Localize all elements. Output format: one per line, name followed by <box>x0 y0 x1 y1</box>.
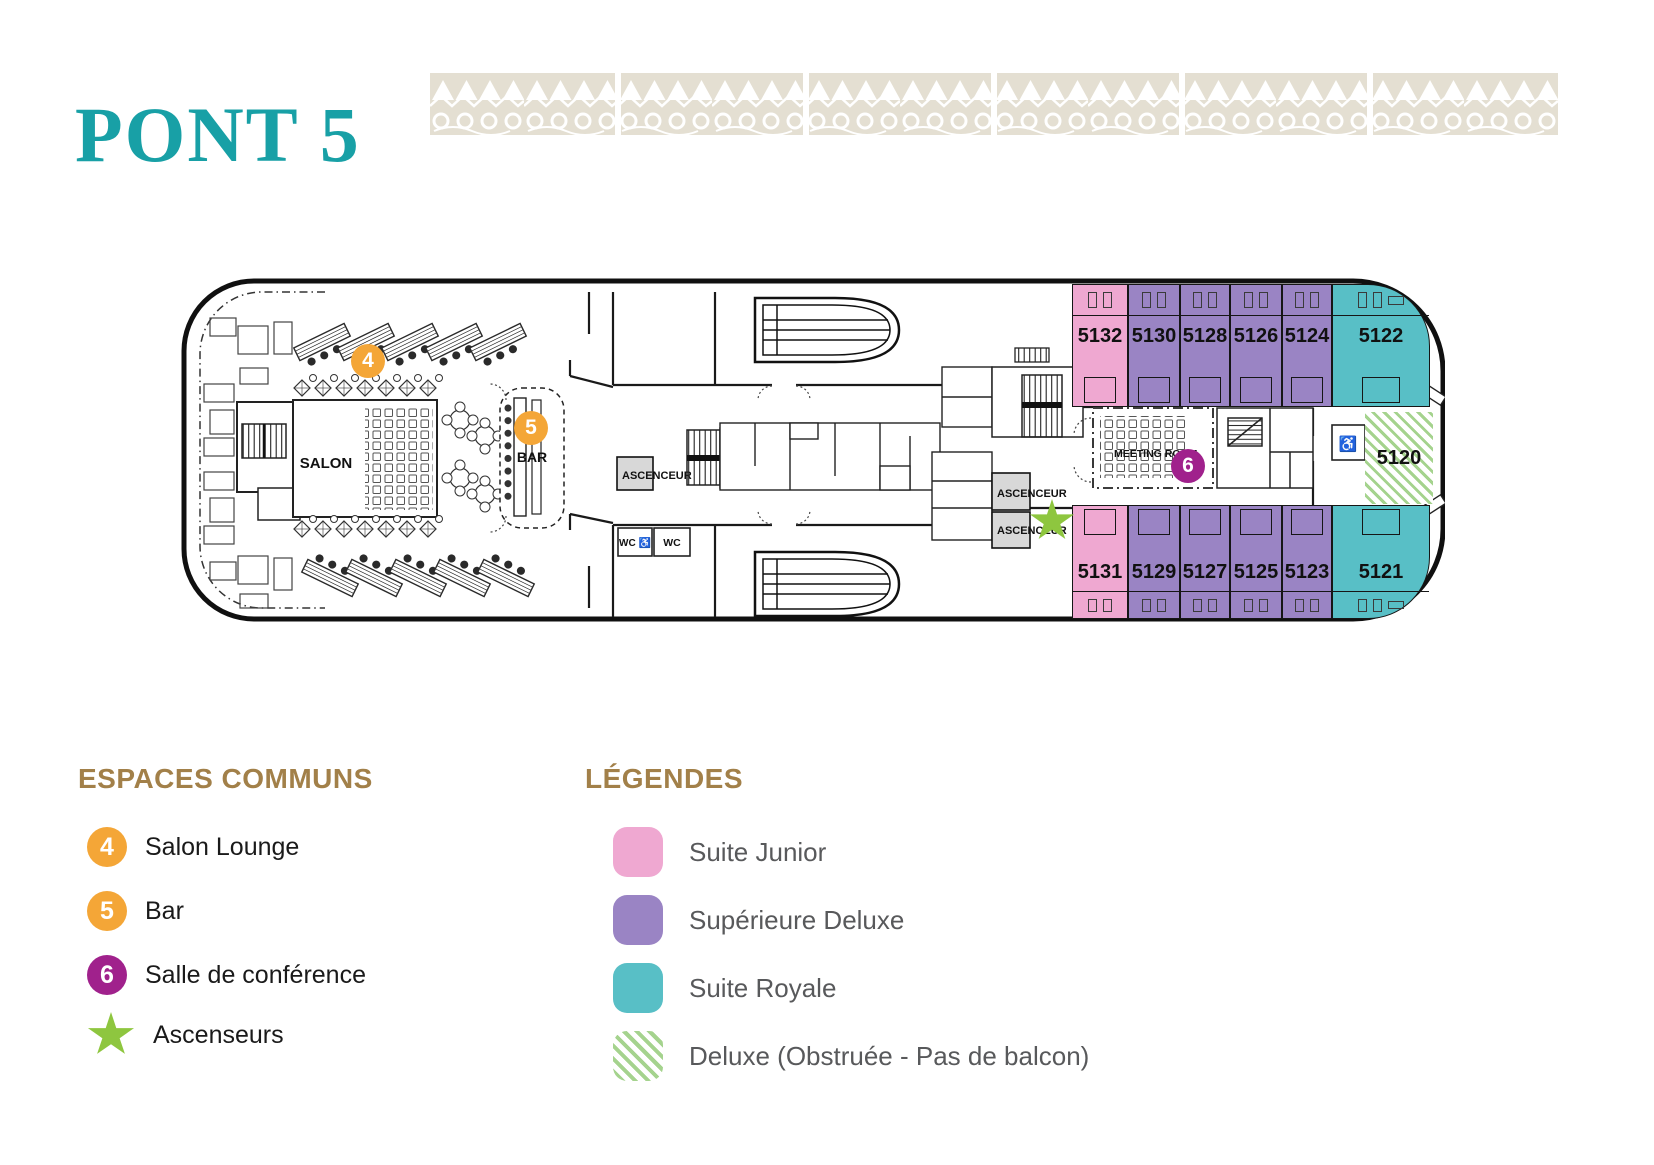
balcony <box>1283 591 1331 618</box>
bed <box>1189 509 1221 535</box>
cabin-number: 5126 <box>1231 325 1281 348</box>
legend-item-label: Salon Lounge <box>145 833 299 862</box>
wc-label: WC <box>663 537 681 549</box>
bed <box>1291 509 1323 535</box>
legend-item-label: Bar <box>145 897 184 926</box>
star-icon <box>87 1012 135 1058</box>
legend-item-label: Supérieure Deluxe <box>689 905 904 936</box>
balcony <box>1333 591 1429 618</box>
legend-item-label: Ascenseurs <box>153 1021 284 1050</box>
balcony <box>1073 285 1127 316</box>
balcony <box>1181 591 1229 618</box>
lifeboat-top <box>755 298 899 362</box>
wc-accessible-label: WC ♿ <box>619 536 651 549</box>
deluxe-obstructed-swatch <box>613 1031 663 1081</box>
bed <box>1138 509 1170 535</box>
balcony <box>1129 285 1179 316</box>
salon-lounge-badge: 4 <box>351 344 385 378</box>
salon-seats <box>365 406 433 510</box>
bed <box>1291 377 1323 403</box>
cabin-5124: 5124 <box>1282 284 1332 407</box>
tapa-pattern <box>430 73 1558 135</box>
decorative-tapa-band <box>430 73 1558 135</box>
cabin-number: 5122 <box>1333 325 1429 348</box>
balcony <box>1181 285 1229 316</box>
bed <box>1362 377 1400 403</box>
salon-label: SALON <box>300 455 353 472</box>
legend-item-label: Suite Junior <box>689 837 826 868</box>
badge-5-icon: 5 <box>87 891 127 931</box>
balcony <box>1129 591 1179 618</box>
balcony <box>1073 591 1127 618</box>
balcony <box>1231 285 1281 316</box>
common-spaces-heading: ESPACES COMMUNS <box>78 763 373 795</box>
cabin-5120-obstructed: 5120 <box>1365 412 1433 504</box>
cabin-5129: 5129 <box>1128 505 1180 619</box>
bar-label: BAR <box>517 449 547 465</box>
legend-item-deluxe-obstructed: Deluxe (Obstruée - Pas de balcon) <box>613 1031 1089 1081</box>
cabin-5121: 5121 <box>1332 505 1430 619</box>
cabin-number: 5127 <box>1181 561 1229 584</box>
balcony <box>1231 591 1281 618</box>
legend-item-superieure-deluxe: Supérieure Deluxe <box>613 895 904 945</box>
legend-item-suite-junior: Suite Junior <box>613 827 826 877</box>
legend-item-label: Deluxe (Obstruée - Pas de balcon) <box>689 1041 1089 1072</box>
bed <box>1138 377 1170 403</box>
legend-item-suite-royale: Suite Royale <box>613 963 836 1013</box>
cabin-5128: 5128 <box>1180 284 1230 407</box>
cabin-number: 5128 <box>1181 325 1229 348</box>
wheelchair-icon: ♿ <box>1339 435 1358 453</box>
bed <box>1240 377 1272 403</box>
cabin-5130: 5130 <box>1128 284 1180 407</box>
bed <box>1362 509 1400 535</box>
cabin-5122: 5122 <box>1332 284 1430 407</box>
legend-item-label: Suite Royale <box>689 973 836 1004</box>
cabin-5131: 5131 <box>1072 505 1128 619</box>
bed <box>1084 377 1116 403</box>
cabin-5126: 5126 <box>1230 284 1282 407</box>
balcony <box>1333 285 1429 316</box>
cabin-number: 5124 <box>1283 325 1331 348</box>
elevator-right-label-1: ASCENCEUR <box>997 488 1067 500</box>
bed <box>1189 377 1221 403</box>
cabin-5123: 5123 <box>1282 505 1332 619</box>
cabin-5127: 5127 <box>1180 505 1230 619</box>
legend-item-elevators: Ascenseurs <box>87 1014 284 1056</box>
badge-6-icon: 6 <box>87 955 127 995</box>
cabin-number: 5121 <box>1333 561 1429 584</box>
suite-royale-swatch <box>613 963 663 1013</box>
aft-stair-block <box>1217 408 1313 488</box>
conference-badge: 6 <box>1171 449 1205 483</box>
cabin-number: 5132 <box>1073 325 1127 348</box>
elevator-left-label: ASCENCEUR <box>622 470 692 482</box>
suite-junior-swatch <box>613 827 663 877</box>
superieure-deluxe-swatch <box>613 895 663 945</box>
balcony <box>1283 285 1331 316</box>
legend-heading: LÉGENDES <box>585 763 743 795</box>
legend-item-label: Salle de conférence <box>145 961 366 990</box>
cabin-number: 5123 <box>1283 561 1331 584</box>
cabin-number: 5125 <box>1231 561 1281 584</box>
bar-badge: 5 <box>514 411 548 445</box>
bed <box>1240 509 1272 535</box>
cabin-number: 5120 <box>1377 447 1422 470</box>
legend-item-salon-lounge: 4 Salon Lounge <box>87 826 299 868</box>
ship-deck-plan: SALON <box>180 276 1445 624</box>
cabin-number: 5131 <box>1073 561 1127 584</box>
cabin-number: 5129 <box>1129 561 1179 584</box>
cabin-5132: 5132 <box>1072 284 1128 407</box>
bed <box>1084 509 1116 535</box>
badge-4-icon: 4 <box>87 827 127 867</box>
cabin-number: 5130 <box>1129 325 1179 348</box>
legend-item-bar: 5 Bar <box>87 890 184 932</box>
cabin-5125: 5125 <box>1230 505 1282 619</box>
page-title: PONT 5 <box>75 96 361 174</box>
lifeboat-bottom <box>755 552 899 616</box>
legend-item-conference: 6 Salle de conférence <box>87 954 366 996</box>
